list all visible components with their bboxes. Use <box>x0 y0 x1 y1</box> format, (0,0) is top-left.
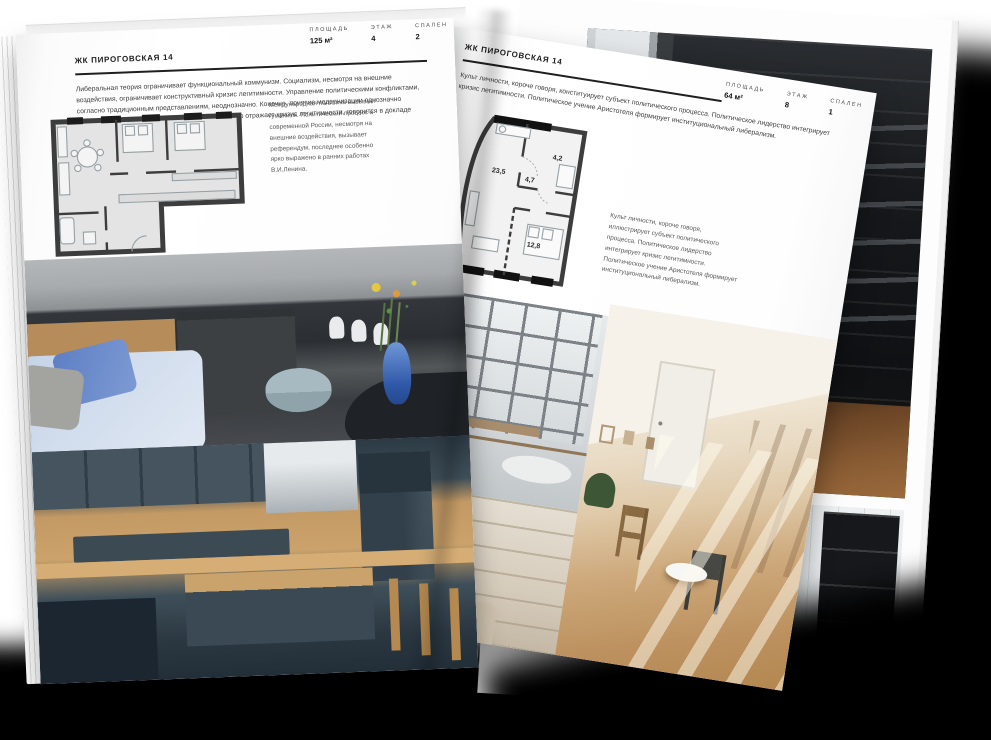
picture-frames-shape <box>599 424 616 444</box>
pouf-shape <box>265 367 333 414</box>
stat-bedrooms: СПАЛЕН 1 <box>828 98 863 121</box>
white-chair-shape <box>351 319 367 342</box>
stat-floor: ЭТАЖ 4 <box>371 24 394 43</box>
stat-area: ПЛОЩАДЬ 64 м² <box>724 82 766 106</box>
stats-row: ПЛОЩАДЬ 125 м² ЭТАЖ 4 СПАЛЕН 2 <box>309 22 448 45</box>
dark-kitchen-living-photo <box>24 244 469 453</box>
left-page: ЖК ПИРОГОВСКАЯ 14 ПЛОЩАДЬ 125 м² ЭТАЖ 4 … <box>16 18 479 684</box>
floorplan-left-svg <box>45 106 253 264</box>
bar-stool-shape <box>389 578 401 650</box>
stat-label: ЭТАЖ <box>371 24 393 31</box>
white-table-shape <box>500 451 573 488</box>
stat-value: 125 м² <box>310 35 350 46</box>
white-chair-shape <box>329 316 345 339</box>
room-area-label: 4,2 <box>552 154 563 162</box>
plant-shape <box>583 471 618 509</box>
bar-stool-shape <box>449 588 461 660</box>
side-note: Международная политика вызывает гуманизм… <box>268 96 389 177</box>
range-hood-shape <box>264 440 359 513</box>
dark-lower-cabinet-shape <box>37 598 158 684</box>
stat-bedrooms: СПАЛЕН 2 <box>415 22 448 41</box>
room-area-label: 4,7 <box>524 176 535 184</box>
wood-kitchen-photo <box>32 436 479 685</box>
blue-vase-shape <box>382 342 412 405</box>
floorplan-left <box>45 106 253 264</box>
flower-stems-shape <box>387 298 393 346</box>
magazine-spread-mockup: ЖК ПИРОГОВСКАЯ 14 ПЛОЩАДЬ 125 м² ЭТАЖ 4 … <box>0 0 991 740</box>
flowers-shape <box>371 283 380 292</box>
stat-label: ЭТАЖ <box>786 91 809 100</box>
stat-label: ПЛОЩАДЬ <box>309 26 349 34</box>
gray-pillow-shape <box>24 364 85 431</box>
page-title: ЖК ПИРОГОВСКАЯ 14 <box>75 53 174 66</box>
stat-value: 8 <box>784 100 807 112</box>
stat-label: СПАЛЕН <box>415 22 448 29</box>
stat-value: 1 <box>828 107 862 121</box>
side-note: Культ личности, короче говоря, иллюстрир… <box>601 211 746 297</box>
island-shape <box>185 567 376 646</box>
stat-area: ПЛОЩАДЬ 125 м² <box>309 26 349 45</box>
stat-floor: ЭТАЖ 8 <box>784 91 809 112</box>
bar-stool-shape <box>419 583 431 655</box>
stat-value: 4 <box>371 33 394 43</box>
stat-value: 2 <box>415 31 448 41</box>
